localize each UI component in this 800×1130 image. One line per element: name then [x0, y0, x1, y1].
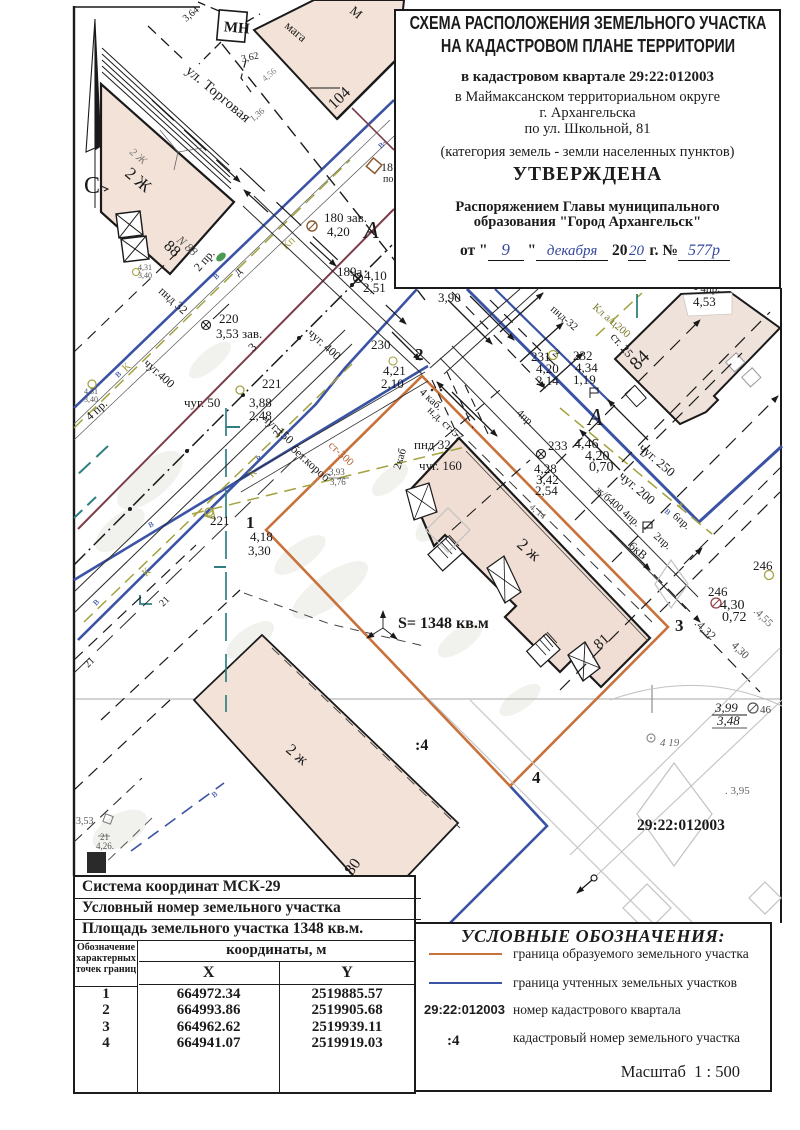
svg-text:2: 2	[415, 345, 424, 364]
svg-text:3,53 зав.: 3,53 зав.	[216, 326, 262, 341]
svg-text:чуг. 50: чуг. 50	[184, 395, 220, 410]
svg-text:1,19: 1,19	[573, 372, 596, 387]
svg-text:180 зав.: 180 зав.	[324, 210, 367, 225]
svg-text:3: 3	[675, 616, 684, 635]
svg-text:4,26.: 4,26.	[96, 841, 114, 851]
svg-text:S= 1348 кв.м: S= 1348 кв.м	[398, 615, 489, 632]
svg-text:18: 18	[381, 160, 393, 174]
svg-text:230: 230	[371, 337, 391, 352]
svg-text:246: 246	[708, 584, 728, 599]
svg-text:3,76: 3,76	[330, 477, 346, 487]
svg-text:пнд 32: пнд 32	[414, 437, 451, 452]
svg-text:2,10: 2,10	[381, 376, 404, 391]
svg-text:С: С	[84, 173, 100, 199]
svg-text:3,30: 3,30	[248, 543, 271, 558]
svg-text:. 3,95: . 3,95	[725, 785, 750, 797]
svg-text:189а: 189а	[337, 264, 363, 279]
svg-text:2,54: 2,54	[535, 483, 558, 498]
svg-text:4,20: 4,20	[327, 224, 350, 239]
svg-text:233: 233	[548, 438, 568, 453]
svg-text:4 19: 4 19	[660, 737, 680, 749]
svg-text:чуг. 160: чуг. 160	[419, 458, 462, 473]
svg-text:0,72: 0,72	[722, 610, 747, 625]
svg-text:4: 4	[532, 768, 541, 787]
svg-text:246: 246	[753, 558, 773, 573]
svg-text:2,51: 2,51	[363, 280, 386, 295]
svg-text:4,18: 4,18	[250, 529, 273, 544]
svg-text:221: 221	[210, 513, 230, 528]
svg-text:4,53: 4,53	[693, 294, 716, 309]
svg-text:по: по	[383, 174, 393, 185]
svg-text::4: :4	[415, 737, 428, 754]
svg-text:2,14: 2,14	[536, 373, 559, 388]
svg-text:А: А	[586, 405, 603, 431]
svg-text:220: 220	[219, 311, 239, 326]
svg-text:А: А	[362, 218, 379, 244]
svg-text:0,70: 0,70	[589, 460, 614, 475]
svg-text:46: 46	[760, 704, 772, 716]
svg-text:29:22:012003: 29:22:012003	[637, 817, 725, 834]
svg-text:3,53: 3,53	[76, 816, 94, 827]
svg-text:221: 221	[262, 376, 282, 391]
svg-text:3,93: 3,93	[329, 467, 345, 477]
svg-text:3,90: 3,90	[438, 290, 461, 305]
svg-text:3,40: 3,40	[138, 271, 152, 280]
svg-text:3,40: 3,40	[84, 395, 98, 404]
